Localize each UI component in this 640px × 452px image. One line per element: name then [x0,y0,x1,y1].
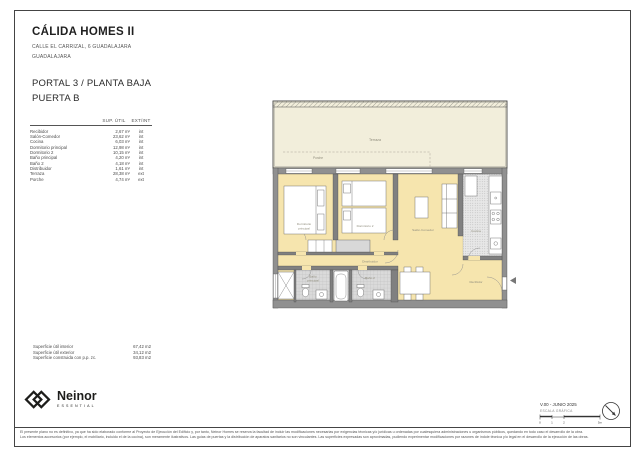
version-label: V.00 - JUNIO 2025 [540,402,602,407]
title-block: CÁLIDA HOMES II CALLE EL CARRIZAL, 6 GUA… [32,26,151,104]
neinor-logomark-icon [24,389,51,410]
svg-text:1: 1 [551,421,553,425]
sofa-icon [442,184,457,228]
distribuidor-label: Distribuidor [362,260,378,264]
footer-divider [14,427,630,428]
entrance-arrow-icon [510,277,516,284]
bathtub-icon [334,271,348,301]
north-compass-icon [600,400,622,422]
portal-floor-label: PORTAL 3 / PLANTA BAJA [32,78,151,89]
surface-summary: Superficie útil interior67,42 m2 Superfi… [33,344,151,361]
shower-icon [278,272,294,299]
plan-sheet: CÁLIDA HOMES II CALLE EL CARRIZAL, 6 GUA… [0,0,640,452]
brand-subline: ESSENTIAL [57,404,97,408]
project-address: CALLE EL CARRIZAL, 6 GUADALAJARA [32,44,151,50]
porch-label: Porche [313,156,323,160]
graphic-scale-bar: 0 1 2 5m [538,413,602,425]
col-sup-util: SUP. ÚTIL [98,118,130,123]
bano2-label: Baño 2 [365,276,375,280]
brand-logo: Neinor ESSENTIAL [24,389,97,410]
terrace-area: Terraza Porche [273,101,507,168]
entry-door-gap [502,277,506,290]
dorm-principal-label: Dormitorio [297,222,312,226]
legal-disclaimer: El presente plano no es definitivo, ya q… [20,430,624,440]
recibidor-label: Recibidor [469,280,482,284]
col-ext-int: EXT/INT [130,118,152,123]
svg-text:2: 2 [563,421,565,425]
coffee-table-icon [415,197,428,218]
project-title: CÁLIDA HOMES II [32,26,151,38]
floor-plan: Terraza Porche [258,94,520,316]
scale-label: ESCALA GRÁFICA [540,409,602,413]
areas-table-body: Recibidor2,67 m²int Salón-Comedor23,62 m… [30,129,152,182]
areas-table: SUP. ÚTIL EXT/INT Recibidor2,67 m²int Sa… [30,118,152,182]
table-row: Porche4,74 m²ext [30,177,152,182]
wardrobe-icon [308,240,370,252]
areas-table-header: SUP. ÚTIL EXT/INT [30,118,152,126]
summary-row: Superficie construida con p.p. zc.93,83 … [33,355,151,361]
project-city: GUADALAJARA [32,54,151,60]
svg-text:principal: principal [307,279,319,283]
disclaimer-line-2: Los elementos accesorios (por ejemplo, e… [20,435,624,440]
terrace-wall-hatch [273,101,507,107]
svg-text:0: 0 [539,421,541,425]
salon-label: Salón-Comedor [412,228,434,232]
door-label: PUERTA B [32,93,151,104]
dorm2-label: Dormitorio 2 [357,224,374,228]
version-block: V.00 - JUNIO 2025 ESCALA GRÁFICA [540,402,602,413]
terrace-label: Terraza [369,138,381,142]
svg-text:principal: principal [298,227,310,231]
brand-name: Neinor [57,390,97,402]
cocina-label: Cocina [471,229,481,233]
